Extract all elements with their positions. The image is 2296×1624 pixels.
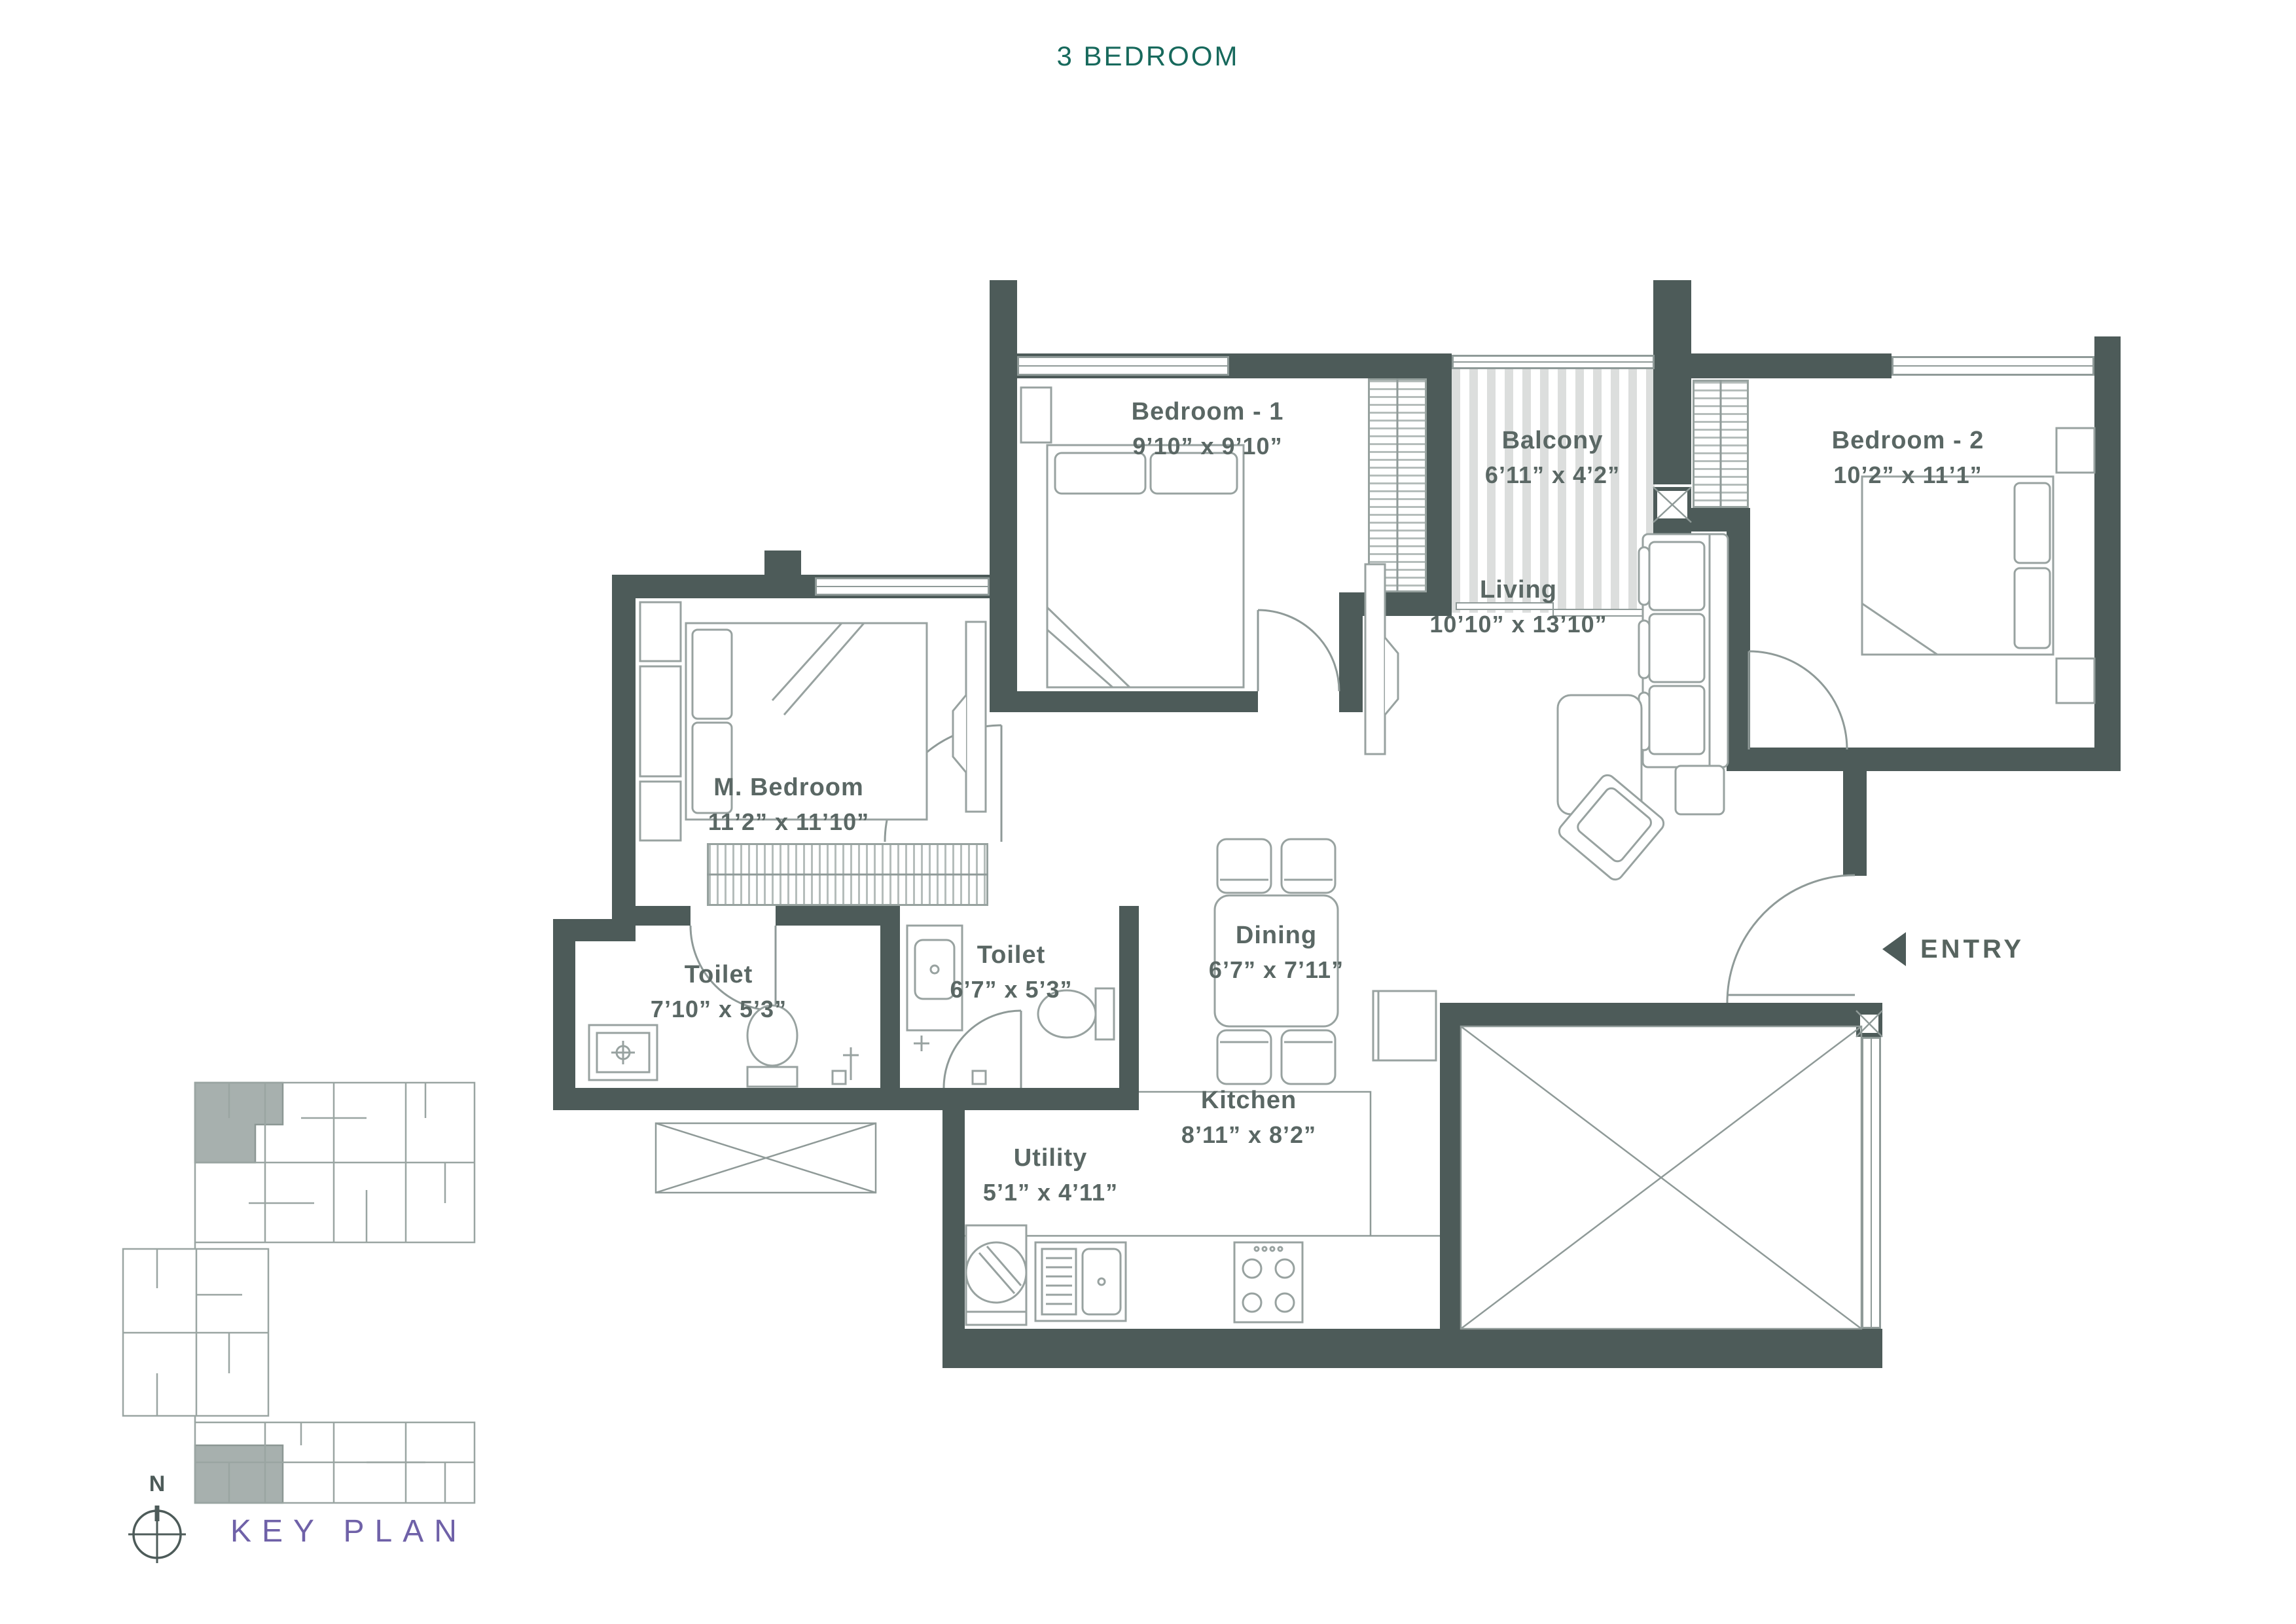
room-label-toilet-1: Toilet 7’10” x 5’3”	[651, 961, 787, 1023]
room-label-utility: Utility 5’1” x 4’11”	[983, 1144, 1118, 1206]
side-table	[1676, 766, 1724, 814]
room-label-toilet-2: Toilet 6’7” x 5’3”	[950, 941, 1072, 1003]
room-label-living: Living 10’10” x 13’10”	[1429, 576, 1607, 638]
key-plan-label: KEY PLAN	[230, 1513, 467, 1549]
compass-north-label: N	[134, 1471, 180, 1497]
compass-icon	[128, 1500, 187, 1566]
room-label-bedroom-2: Bedroom - 2 10’2” x 11’1”	[1832, 427, 1984, 489]
door-arc	[1749, 651, 1847, 749]
shower-toilet-2	[914, 1036, 929, 1051]
room-label-bedroom-1: Bedroom - 1 9’10” x 9’10”	[1132, 398, 1284, 460]
washbasin-toilet-1	[589, 1025, 657, 1080]
floor-drain	[973, 1071, 986, 1084]
floorplan-page: 3 BEDROOM	[0, 0, 2296, 1624]
kitchen-sink	[1035, 1242, 1126, 1321]
tv-unit-m-bedroom	[953, 622, 986, 812]
duct-cross	[656, 1123, 876, 1193]
key-plan-map	[118, 1079, 484, 1504]
cooktop-hob	[1234, 1242, 1302, 1322]
sofa	[1639, 534, 1728, 767]
floor-drain	[833, 1071, 846, 1084]
washing-machine	[966, 1225, 1026, 1325]
void-cross-area	[1461, 1026, 1861, 1329]
door-arc	[1727, 875, 1855, 1003]
room-label-m-bedroom: M. Bedroom 11’2” x 11’10”	[708, 774, 869, 836]
room-label-balcony: Balcony 6’11” x 4’2”	[1485, 427, 1620, 489]
entry-arrow-icon	[1882, 932, 1906, 966]
room-label-dining: Dining 6’7” x 7’11”	[1209, 922, 1344, 984]
fridge	[1373, 991, 1436, 1060]
door-arc	[1258, 610, 1339, 691]
room-label-kitchen: Kitchen 8’11” x 8’2”	[1181, 1087, 1316, 1149]
entry-label: ENTRY	[1920, 935, 2024, 964]
tv-unit-living	[1365, 564, 1398, 754]
